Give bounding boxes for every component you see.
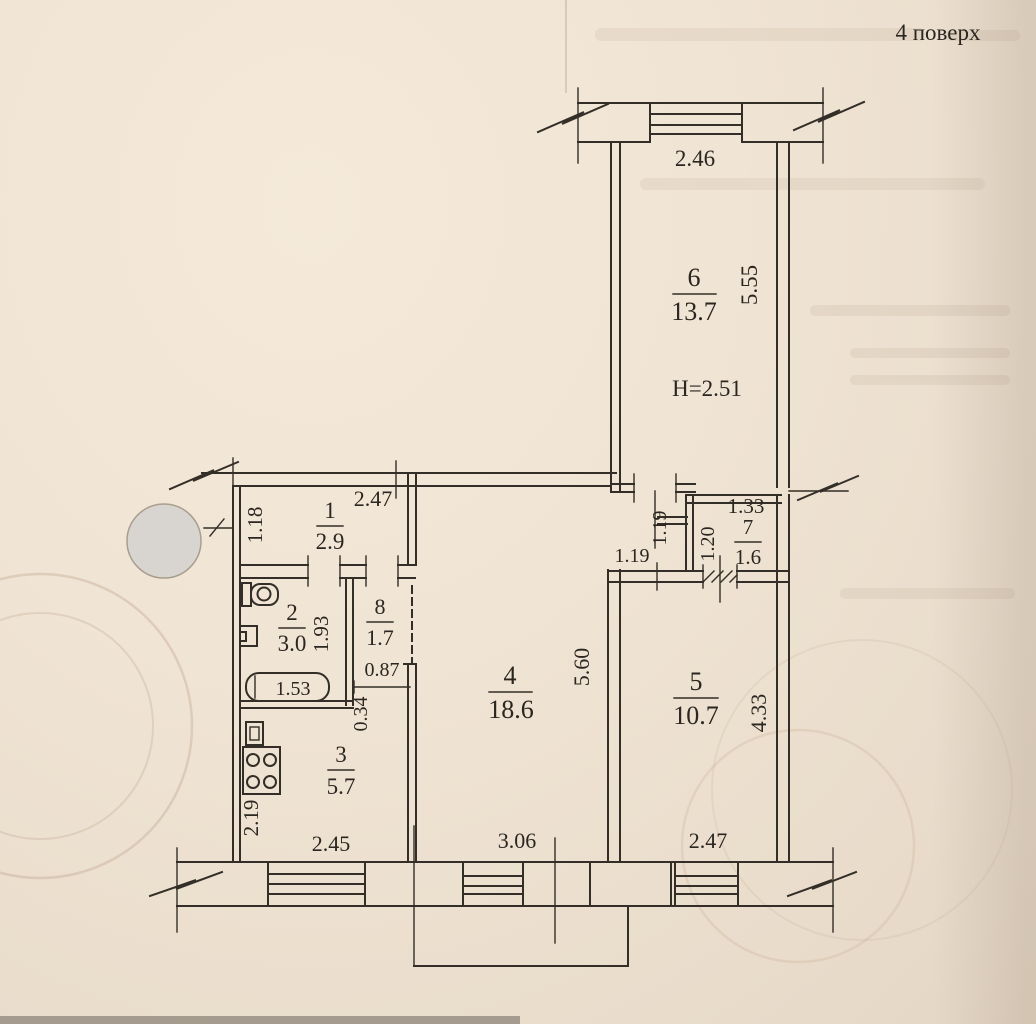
- room-number: 2: [286, 600, 298, 625]
- dimension-label: 2.47: [689, 828, 728, 853]
- ghost-text-bar: [640, 178, 985, 190]
- toilet-bowl: [258, 588, 271, 601]
- room-area: 18.6: [488, 695, 534, 724]
- stove-burner: [247, 754, 259, 766]
- dimension-label: 2.45: [312, 831, 351, 856]
- sink-basin: [240, 626, 257, 646]
- sink-faucet: [240, 632, 246, 641]
- hole-punch: [127, 504, 201, 578]
- room-6-label: 6 13.7: [671, 263, 717, 326]
- dimension-label: 0.87: [365, 659, 400, 681]
- room-number: 3: [335, 742, 347, 767]
- paper-artifacts: [0, 0, 1020, 1024]
- entry-top-wall: [170, 458, 616, 500]
- room-4-label: 4 18.6: [488, 661, 534, 724]
- room-number: 6: [688, 263, 701, 292]
- room-area: 10.7: [673, 701, 719, 730]
- dimension-label: 2.19: [239, 800, 263, 837]
- stove-icon: [243, 747, 280, 794]
- room-8-label: 8 1.7: [366, 594, 394, 650]
- wall-break-icon: [538, 104, 608, 132]
- sink-icon: [240, 626, 257, 646]
- window: [463, 862, 523, 906]
- sink-inner: [250, 727, 259, 740]
- toilet-icon: [242, 583, 278, 606]
- room-area: 2.9: [316, 529, 345, 554]
- wall-break-icon: [170, 462, 238, 489]
- ghost-text-bar: [595, 28, 925, 41]
- dimension-label: 1.18: [243, 507, 267, 544]
- hatch-line: [730, 575, 737, 582]
- dimension-label: 1.20: [697, 527, 719, 562]
- stamp-circle: [0, 574, 192, 878]
- room-number: 1: [324, 498, 336, 523]
- ghost-text-bar: [810, 305, 1010, 316]
- ghost-text-bar: [840, 588, 1015, 599]
- stove-burner: [264, 754, 276, 766]
- hatch-line: [712, 571, 723, 582]
- room-area: 5.7: [327, 774, 356, 799]
- ghost-text-bar: [850, 375, 1010, 385]
- stove-burner: [247, 776, 259, 788]
- dimension-label: 1.93: [309, 616, 333, 653]
- photo-edge-shadow: [0, 1016, 520, 1024]
- stamp-circle: [0, 613, 153, 839]
- room4-room5-wall: [608, 570, 620, 862]
- room-number: 8: [375, 594, 386, 619]
- dimension-label: 5.60: [569, 648, 594, 687]
- stove-burner: [264, 776, 276, 788]
- dimension-label: 5.55: [737, 265, 762, 305]
- room-area: 3.0: [278, 631, 307, 656]
- room-5-label: 5 10.7: [673, 667, 719, 730]
- room-number: 4: [504, 661, 517, 690]
- room-1-label: 1 2.9: [316, 498, 345, 554]
- floor-label: 4 поверх: [896, 20, 981, 45]
- wall-break-icon: [794, 102, 864, 130]
- wall-break-icon: [798, 476, 858, 500]
- dimension-label: 2.47: [354, 486, 393, 511]
- floor-plan-drawing: 4 поверх 6 13.7 2.46 5.55 H=2.51 1 2.9 2…: [0, 0, 1036, 1024]
- dimension-label: 1.53: [276, 678, 311, 700]
- room-area: 1.7: [366, 625, 394, 650]
- room-2-label: 2 3.0: [278, 600, 307, 656]
- ghost-text-bar: [850, 348, 1010, 358]
- dimension-label: 2.46: [675, 146, 715, 171]
- sink-basin: [246, 722, 263, 745]
- kitchen-sink-icon: [246, 722, 263, 745]
- room-area: 13.7: [671, 297, 717, 326]
- room-number: 7: [743, 515, 754, 539]
- wall-break-icon: [150, 872, 222, 896]
- room-number: 5: [690, 667, 703, 696]
- window: [650, 103, 742, 142]
- wall-break-icon: [788, 872, 856, 896]
- dimension-label: 3.06: [498, 828, 537, 853]
- west-wall: [204, 486, 240, 862]
- dimension-label: 4.33: [746, 694, 771, 733]
- room-3-label: 3 5.7: [327, 742, 356, 799]
- dimension-label: 1.19: [615, 545, 650, 567]
- dimension-label: 1.19: [649, 511, 671, 546]
- room-area: 1.6: [735, 545, 761, 569]
- stamp-circle: [712, 640, 1012, 940]
- toilet-tank: [242, 583, 251, 606]
- hatch-line: [703, 571, 714, 582]
- hatch-line: [721, 571, 732, 582]
- balcony-door-opening: [590, 862, 671, 906]
- dimension-label: 1.33: [728, 494, 765, 518]
- room-7-label: 7 1.6: [735, 515, 761, 569]
- ceiling-height-label: H=2.51: [672, 376, 742, 401]
- kitchen-walls: [408, 664, 416, 862]
- east-wall: [777, 476, 858, 862]
- labels: 4 поверх 6 13.7 2.46 5.55 H=2.51 1 2.9 2…: [239, 20, 981, 856]
- scanned-floor-plan-page: 4 поверх 6 13.7 2.46 5.55 H=2.51 1 2.9 2…: [0, 0, 1036, 1024]
- dimension-label: 0.34: [350, 697, 372, 732]
- window: [268, 862, 365, 906]
